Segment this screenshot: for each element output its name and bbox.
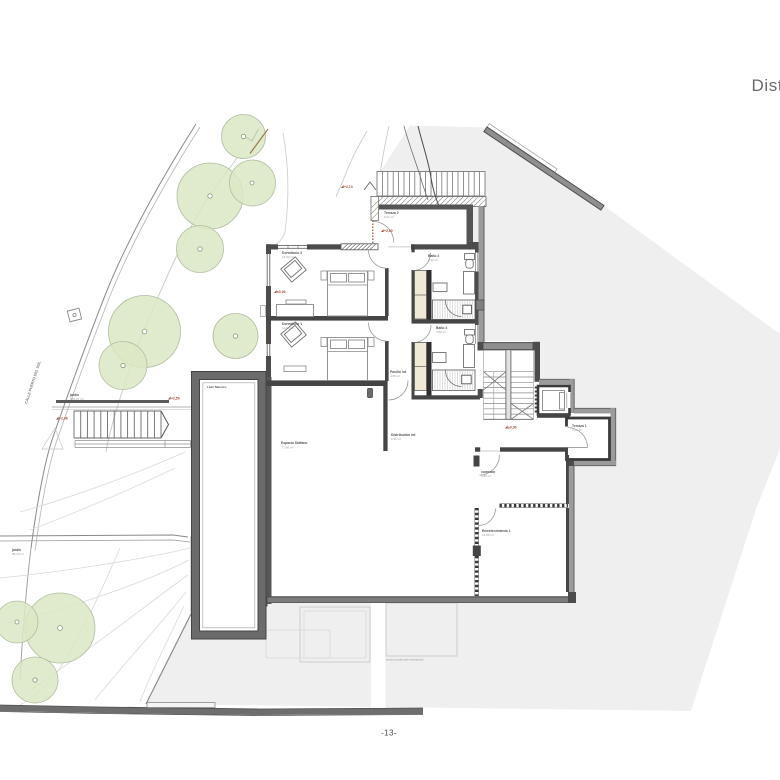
- svg-text:7,05 m²: 7,05 m²: [572, 428, 582, 432]
- svg-text:8,86 m²: 8,86 m²: [481, 474, 491, 478]
- svg-text:acceso peatonal urbanizado: acceso peatonal urbanizado: [386, 658, 424, 662]
- svg-text:188,31 m²: 188,31 m²: [70, 397, 84, 401]
- svg-text:+2,46: +2,46: [59, 417, 68, 421]
- svg-text:±0,00: ±0,00: [277, 290, 286, 294]
- svg-text:+2,50: +2,50: [384, 229, 393, 233]
- svg-text:6,91 m²: 6,91 m²: [391, 437, 401, 441]
- svg-text:±0,00: ±0,00: [508, 426, 517, 430]
- svg-text:95,43 m²: 95,43 m²: [12, 552, 24, 556]
- svg-text:Lado Maestro: Lado Maestro: [207, 385, 227, 389]
- svg-text:12,86 m²: 12,86 m²: [482, 533, 494, 537]
- svg-text:8,41 m²: 8,41 m²: [384, 215, 394, 219]
- svg-text:4,35 m²: 4,35 m²: [390, 374, 400, 378]
- svg-text:+2,50: +2,50: [171, 397, 180, 401]
- svg-text:4,32 m²: 4,32 m²: [428, 258, 438, 262]
- svg-text:Distribución: Distribución: [752, 76, 780, 95]
- svg-text:13,11 m²: 13,11 m²: [282, 326, 294, 330]
- svg-text:77,90 m²: 77,90 m²: [282, 446, 294, 450]
- svg-text:13,33 m²: 13,33 m²: [282, 255, 294, 259]
- svg-text:4,30 m²: 4,30 m²: [436, 330, 446, 334]
- svg-text:Espacio Diáfano: Espacio Diáfano: [281, 441, 307, 445]
- svg-text:+2,74: +2,74: [344, 185, 353, 189]
- svg-text:-13-: -13-: [381, 729, 397, 738]
